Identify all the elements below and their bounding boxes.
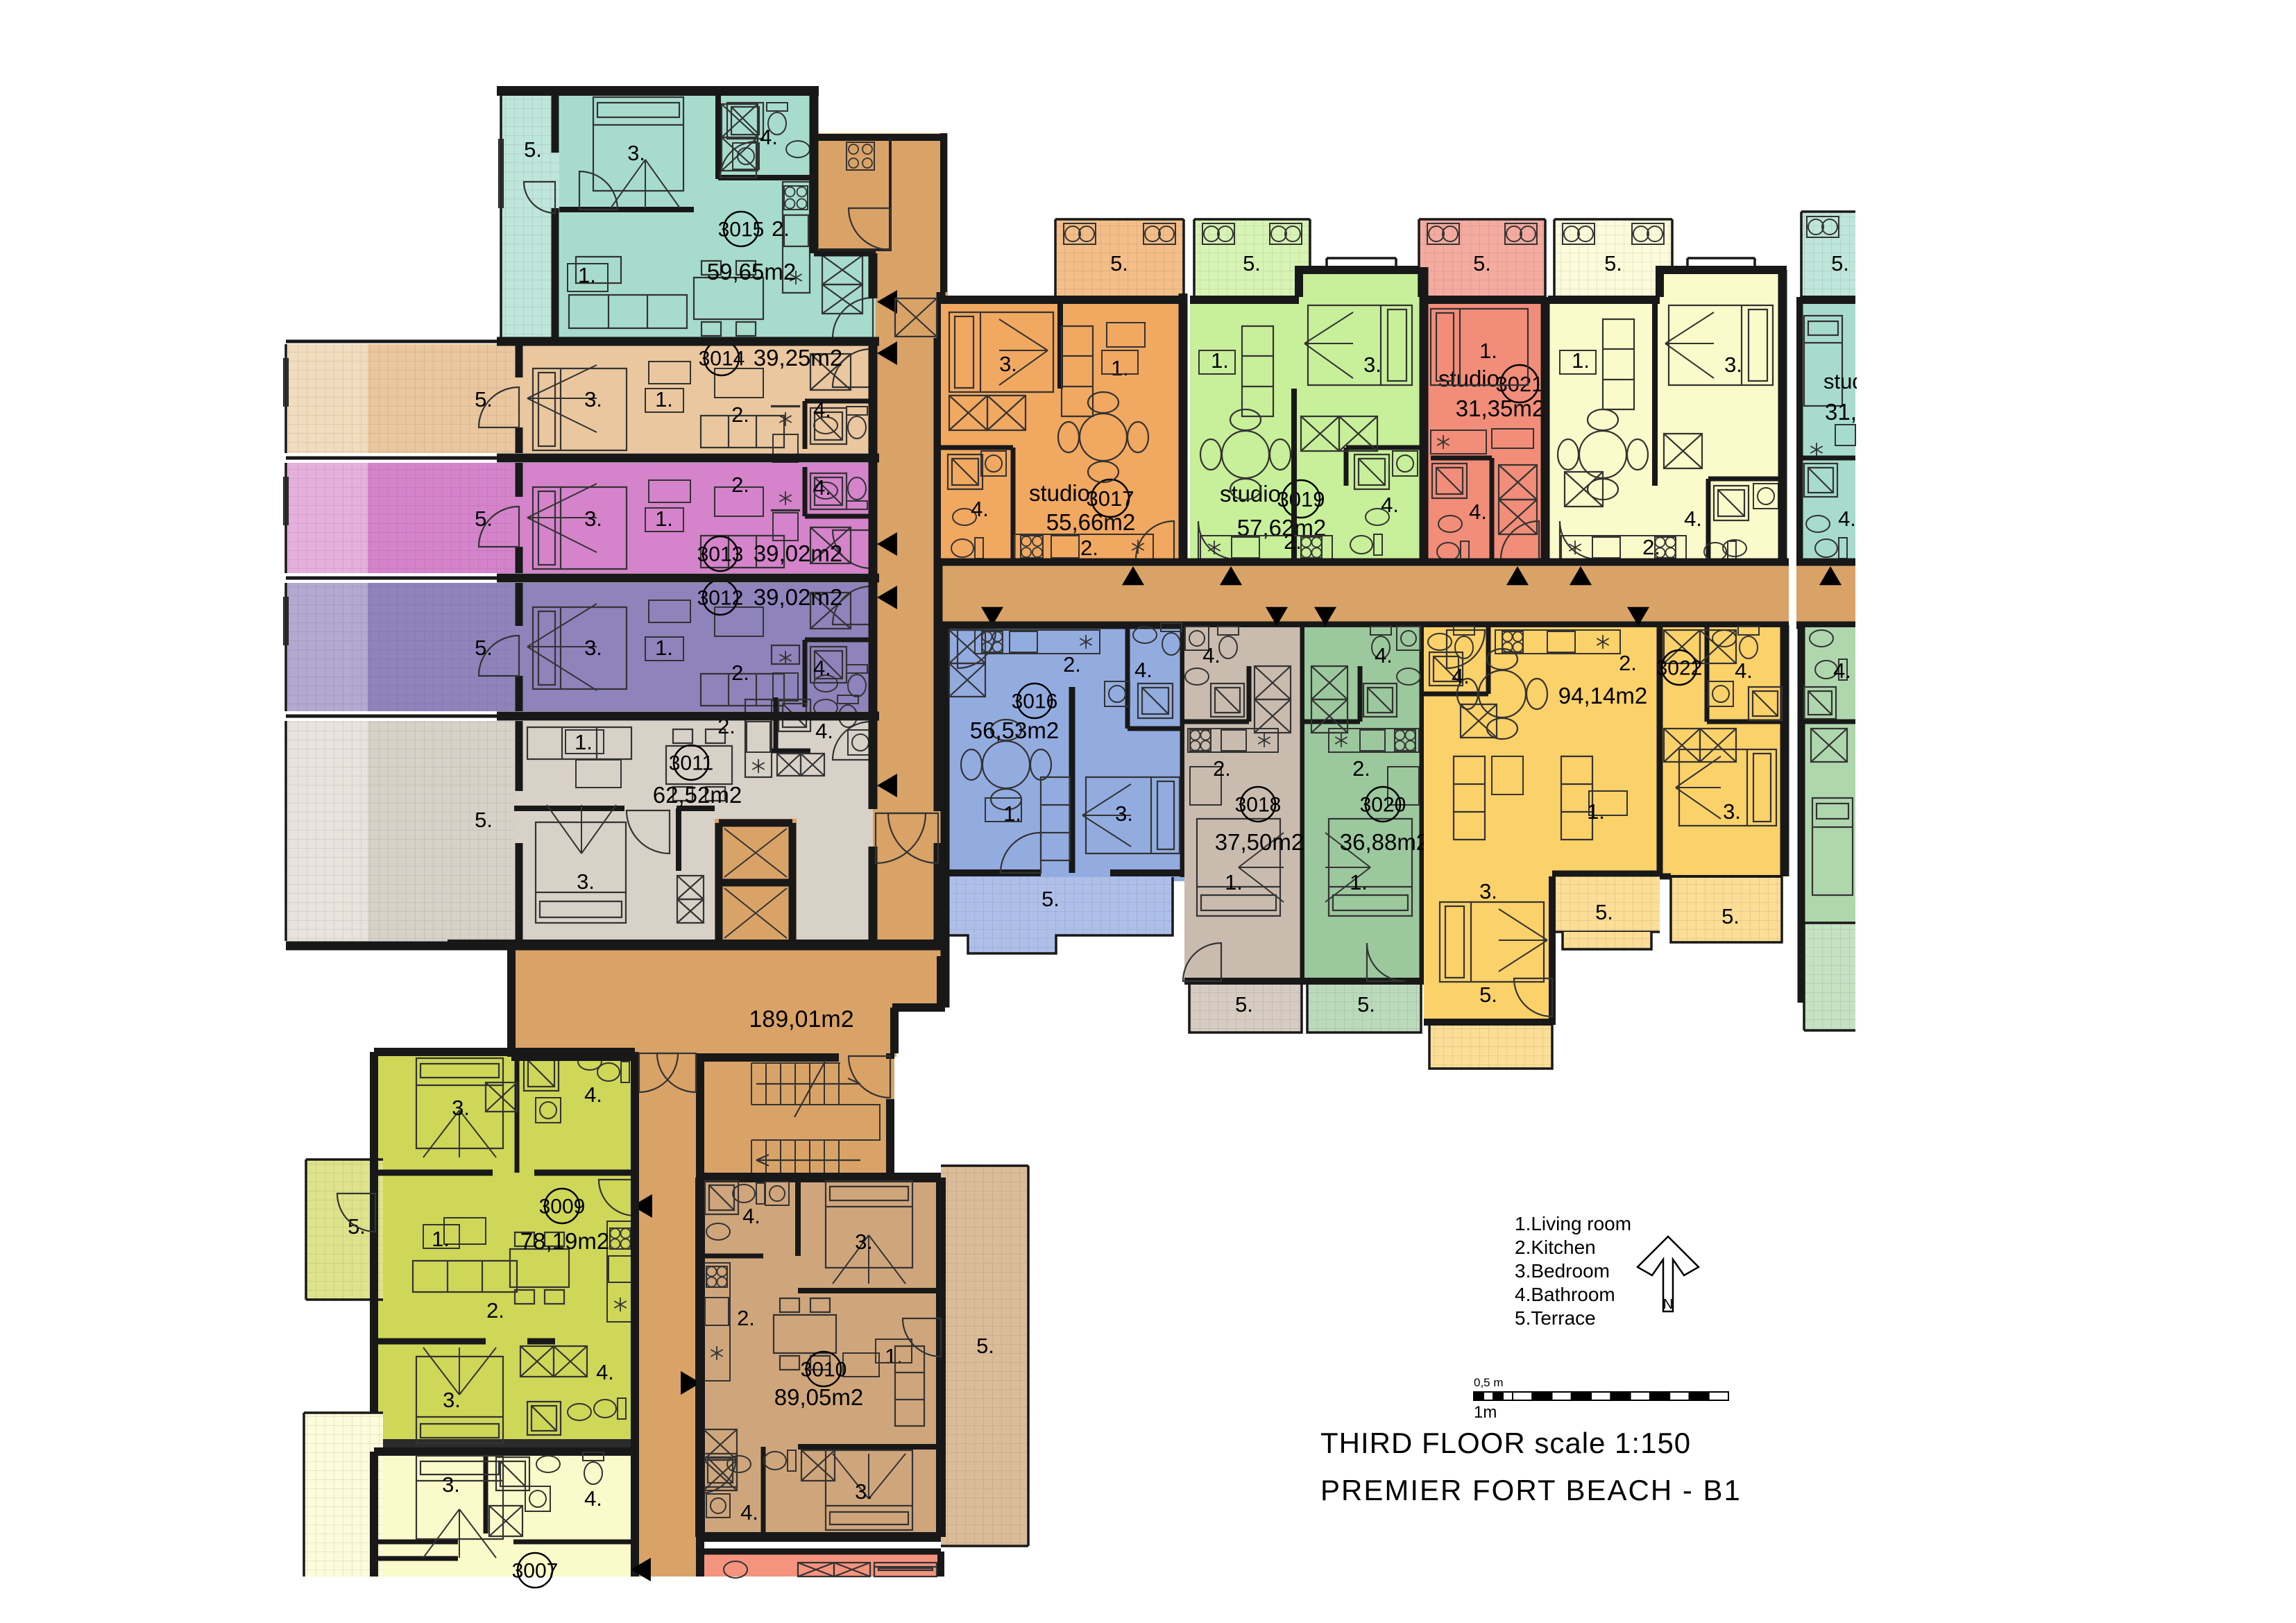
svg-text:3012: 3012 xyxy=(697,587,744,610)
svg-text:5.: 5. xyxy=(1721,904,1740,928)
svg-text:3009: 3009 xyxy=(539,1196,586,1218)
svg-text:5.: 5. xyxy=(1595,900,1613,924)
svg-text:2.: 2. xyxy=(1213,756,1231,781)
svg-text:4.: 4. xyxy=(596,1360,614,1384)
svg-text:5.: 5. xyxy=(1110,251,1128,275)
svg-text:4.: 4. xyxy=(1381,493,1399,517)
svg-text:2.: 2. xyxy=(1080,536,1098,560)
svg-text:THIRD FLOOR scale 1:150: THIRD FLOOR scale 1:150 xyxy=(1320,1427,1691,1459)
svg-text:4.: 4. xyxy=(971,497,989,521)
svg-text:4.: 4. xyxy=(815,719,833,743)
svg-text:4.: 4. xyxy=(584,1486,602,1511)
svg-text:0,5 m: 0,5 m xyxy=(1474,1376,1504,1389)
svg-text:3021: 3021 xyxy=(1496,372,1544,396)
svg-text:3011: 3011 xyxy=(669,752,714,775)
svg-text:89,05m2: 89,05m2 xyxy=(774,1384,863,1410)
svg-text:4.: 4. xyxy=(813,656,831,680)
svg-text:3.: 3. xyxy=(855,1479,873,1504)
svg-text:5.: 5. xyxy=(475,507,493,531)
svg-text:4.: 4. xyxy=(1684,507,1702,531)
svg-text:36,88m2: 36,88m2 xyxy=(1340,829,1429,855)
svg-text:55,66m2: 55,66m2 xyxy=(1046,509,1135,535)
svg-text:5.: 5. xyxy=(475,636,493,660)
svg-text:2.: 2. xyxy=(486,1298,504,1323)
svg-text:3.: 3. xyxy=(584,507,602,531)
svg-text:3.: 3. xyxy=(442,1472,460,1497)
svg-text:31,35m2: 31,35m2 xyxy=(1456,396,1545,421)
svg-text:1.: 1. xyxy=(655,387,673,411)
svg-text:1.: 1. xyxy=(1211,348,1229,373)
svg-text:3015: 3015 xyxy=(718,219,765,241)
svg-text:189,01m2: 189,01m2 xyxy=(749,1006,853,1033)
svg-text:59,65m2: 59,65m2 xyxy=(707,259,796,284)
svg-text:2.: 2. xyxy=(731,402,749,427)
svg-text:3018: 3018 xyxy=(1235,794,1282,817)
svg-text:1.: 1. xyxy=(1111,356,1129,380)
svg-text:3020: 3020 xyxy=(1360,794,1406,817)
svg-text:studio: studio xyxy=(1438,366,1499,391)
svg-text:1.: 1. xyxy=(1587,799,1605,824)
svg-text:39,25m2: 39,25m2 xyxy=(754,345,842,371)
svg-text:4.: 4. xyxy=(813,475,831,500)
svg-text:5.: 5. xyxy=(475,808,493,832)
svg-text:5.: 5. xyxy=(1243,251,1261,275)
svg-text:3014: 3014 xyxy=(699,348,745,371)
svg-text:PREMIER FORT BEACH - B1: PREMIER FORT BEACH - B1 xyxy=(1320,1474,1742,1506)
svg-text:5.: 5. xyxy=(1235,992,1253,1017)
svg-text:3.: 3. xyxy=(584,636,602,660)
svg-text:5.: 5. xyxy=(1831,251,1849,275)
svg-text:N: N xyxy=(1663,1297,1673,1312)
svg-text:2.: 2. xyxy=(1284,529,1302,554)
svg-text:3.: 3. xyxy=(1363,352,1381,377)
svg-text:3.: 3. xyxy=(855,1230,873,1254)
svg-text:2.Kitchen: 2.Kitchen xyxy=(1515,1237,1596,1258)
svg-text:3007: 3007 xyxy=(512,1560,559,1583)
svg-text:3017: 3017 xyxy=(1087,486,1134,511)
svg-text:3.: 3. xyxy=(443,1388,461,1412)
svg-text:1.: 1. xyxy=(432,1227,450,1251)
svg-text:2.: 2. xyxy=(737,1306,755,1330)
svg-text:1.: 1. xyxy=(1572,348,1590,373)
svg-text:2.: 2. xyxy=(1063,652,1081,677)
svg-text:4.: 4. xyxy=(740,1500,758,1524)
svg-text:5.: 5. xyxy=(475,387,493,411)
svg-text:3.: 3. xyxy=(1479,879,1497,903)
svg-text:4.: 4. xyxy=(1202,643,1221,668)
svg-text:1.: 1. xyxy=(885,1344,903,1368)
svg-text:3.: 3. xyxy=(584,387,602,411)
svg-text:2.: 2. xyxy=(731,473,749,497)
svg-text:78,19m2: 78,19m2 xyxy=(520,1228,609,1254)
svg-text:3.: 3. xyxy=(452,1096,470,1120)
svg-text:3.Bedroom: 3.Bedroom xyxy=(1515,1260,1610,1282)
svg-text:4.: 4. xyxy=(584,1082,602,1107)
svg-text:1.: 1. xyxy=(575,730,593,754)
svg-text:4.: 4. xyxy=(760,125,778,149)
svg-text:94,14m2: 94,14m2 xyxy=(1558,683,1647,708)
svg-text:5.: 5. xyxy=(1604,251,1622,275)
svg-text:2.: 2. xyxy=(731,661,749,685)
svg-text:1.Living room: 1.Living room xyxy=(1515,1213,1631,1234)
svg-text:4.: 4. xyxy=(1838,507,1856,531)
svg-text:2.: 2. xyxy=(772,216,790,241)
svg-text:4.: 4. xyxy=(742,1204,760,1228)
svg-text:37,50m2: 37,50m2 xyxy=(1215,829,1304,855)
svg-text:5.: 5. xyxy=(1479,983,1497,1007)
svg-text:1.: 1. xyxy=(578,263,596,287)
svg-text:1m: 1m xyxy=(1474,1403,1497,1422)
svg-text:3.: 3. xyxy=(577,869,595,894)
svg-text:3016: 3016 xyxy=(1012,690,1058,713)
svg-text:3.: 3. xyxy=(1115,801,1133,826)
svg-text:39,02m2: 39,02m2 xyxy=(754,584,842,610)
svg-text:4.: 4. xyxy=(1469,500,1487,524)
svg-text:4.: 4. xyxy=(1375,643,1393,668)
svg-text:3.: 3. xyxy=(999,352,1017,376)
svg-text:4.: 4. xyxy=(1134,658,1153,682)
svg-text:studio: studio xyxy=(1029,480,1090,506)
svg-text:5.: 5. xyxy=(976,1334,994,1358)
svg-text:5.: 5. xyxy=(1473,251,1491,275)
svg-text:3019: 3019 xyxy=(1277,487,1325,511)
svg-text:5.: 5. xyxy=(1357,992,1375,1017)
svg-text:1.: 1. xyxy=(1350,870,1368,894)
svg-text:5.: 5. xyxy=(524,137,542,162)
svg-text:4.: 4. xyxy=(813,398,831,422)
svg-text:56,53m2: 56,53m2 xyxy=(970,717,1059,743)
svg-text:4.Bathroom: 4.Bathroom xyxy=(1515,1284,1615,1305)
svg-text:5.: 5. xyxy=(1041,887,1060,911)
svg-text:studio: studio xyxy=(1220,481,1281,507)
svg-text:39,02m2: 39,02m2 xyxy=(754,541,842,566)
svg-text:2.: 2. xyxy=(1352,756,1370,781)
svg-text:4.: 4. xyxy=(1735,658,1753,683)
svg-text:4.: 4. xyxy=(1833,658,1851,683)
svg-text:2.: 2. xyxy=(1619,651,1637,675)
svg-text:1.: 1. xyxy=(655,507,673,531)
svg-text:3010: 3010 xyxy=(801,1359,847,1382)
svg-text:1.: 1. xyxy=(655,636,673,660)
svg-text:2.: 2. xyxy=(1642,535,1660,559)
svg-text:3013: 3013 xyxy=(697,543,744,566)
svg-text:3.: 3. xyxy=(1724,352,1742,377)
svg-text:3.: 3. xyxy=(1723,799,1741,824)
svg-text:3.: 3. xyxy=(627,141,645,165)
svg-text:1.: 1. xyxy=(1479,339,1497,363)
svg-text:1.: 1. xyxy=(1003,801,1021,826)
svg-text:62,52m2: 62,52m2 xyxy=(653,782,742,808)
svg-text:3022: 3022 xyxy=(1656,657,1703,680)
svg-text:5.Terrace: 5.Terrace xyxy=(1515,1307,1596,1329)
svg-text:1.: 1. xyxy=(1225,870,1243,894)
